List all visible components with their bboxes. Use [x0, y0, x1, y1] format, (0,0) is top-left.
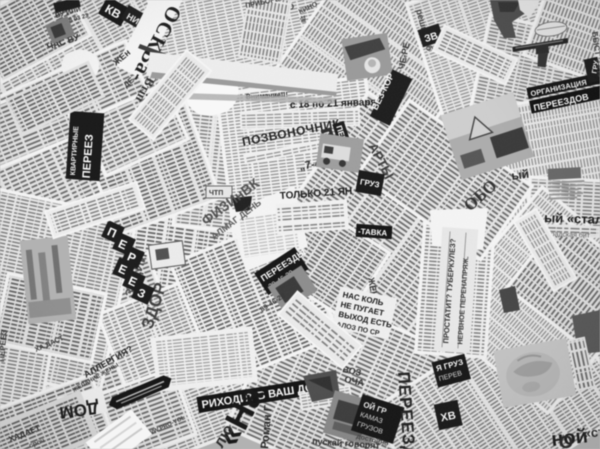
svg-text:О: О: [558, 431, 575, 449]
